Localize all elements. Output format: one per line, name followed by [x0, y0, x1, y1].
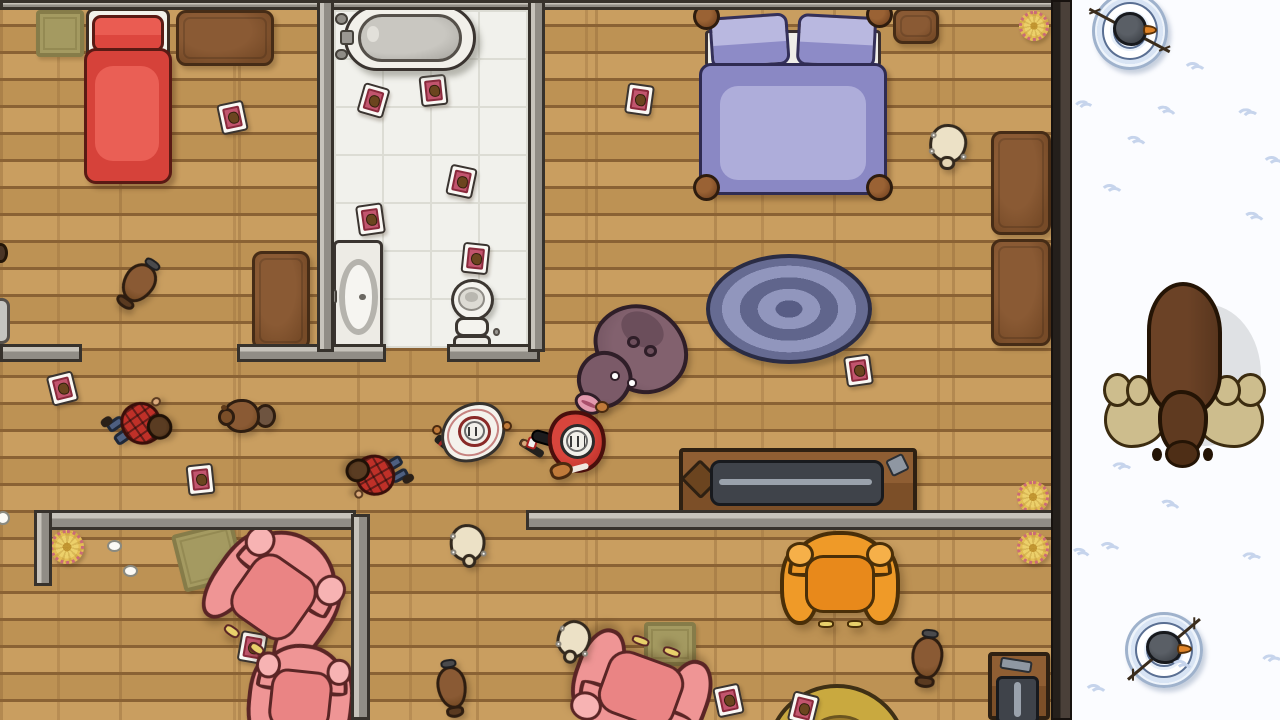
playerred-boot2	[595, 401, 609, 413]
bedpurple-pillow-l	[709, 12, 791, 70]
hippo-ear1	[627, 336, 640, 348]
snow-mark-2	[1153, 104, 1179, 121]
toilet-hole	[465, 292, 477, 302]
rug-round-bottomleft	[50, 530, 84, 564]
bedpurple-post-br	[866, 174, 893, 201]
wall-mid-left-v	[34, 510, 52, 586]
rug-round-right-1	[1017, 481, 1049, 513]
hippo-eye1	[610, 371, 620, 380]
hippo-eye2	[627, 378, 637, 387]
chair-knob-r	[866, 542, 894, 567]
toilet-btn	[493, 328, 500, 336]
game-stage[interactable]	[0, 0, 1280, 720]
rug-brown-top	[176, 10, 274, 66]
bedred-duvet-hl	[95, 66, 158, 161]
snow-mark-15	[1259, 652, 1280, 669]
snow-mark-13	[1169, 659, 1194, 675]
wall-bottomleft-2	[237, 344, 386, 362]
hockey-player-white[interactable]	[432, 399, 512, 465]
rug-brown-left	[252, 251, 310, 350]
bedpurple-pillow-r	[796, 13, 877, 69]
sheep-head	[461, 554, 477, 569]
wall-mid-right-h	[526, 510, 1054, 530]
mat-khaki-topleft	[36, 10, 84, 57]
snow-mark-10	[1157, 498, 1183, 515]
snow-mark-14	[1084, 684, 1108, 698]
egg-2[interactable]	[123, 565, 138, 577]
wall-bathroom-right	[528, 0, 545, 352]
tub-spout	[340, 30, 354, 45]
rug-round-topright	[1019, 11, 1049, 41]
snow-mark-3	[1235, 107, 1260, 123]
playerwhite-tab-l	[432, 425, 442, 435]
chair-seat	[805, 555, 875, 613]
sink-basin	[339, 259, 378, 334]
moose-hoof1	[1152, 448, 1162, 461]
beaver-card-7[interactable]	[624, 82, 655, 116]
bathtub[interactable]	[334, 5, 476, 71]
snow-mark-11	[1098, 542, 1122, 556]
beaver-card-3[interactable]	[418, 74, 448, 108]
snow-mark-9	[1109, 461, 1134, 477]
bedred-pillow	[92, 15, 164, 52]
wall-bottomleft-1	[0, 344, 82, 362]
mat-brown-topright	[893, 8, 939, 44]
bedpurple-post-bl	[693, 174, 720, 201]
beaver-ear	[221, 405, 226, 410]
sheep-foot3	[582, 650, 589, 657]
snow-mark-7	[1241, 211, 1266, 227]
beaver-1[interactable]	[218, 398, 276, 434]
ice-fishing-hole-1[interactable]	[1092, 0, 1168, 70]
armchair-orange[interactable]	[780, 531, 900, 627]
toilet-tank	[455, 317, 488, 337]
beaver-card-9[interactable]	[185, 463, 215, 497]
bed-red[interactable]	[84, 8, 172, 184]
playerwhite-tab-r	[502, 421, 512, 432]
sheep-foot3	[960, 153, 967, 160]
moose-snout	[1165, 440, 1200, 468]
sheep-1[interactable]	[928, 123, 968, 173]
sheep-2[interactable]	[448, 523, 488, 572]
tub-knob2	[335, 49, 348, 61]
sink[interactable]	[333, 240, 383, 354]
playerred-crest	[560, 424, 595, 459]
hippo-ear2	[644, 345, 657, 357]
chair-foot-l	[818, 620, 834, 628]
wall-mid-left-h	[34, 510, 356, 530]
snow-mark-16	[1069, 547, 1092, 562]
sheep-head	[939, 155, 955, 170]
bedpurple-duvet-hl	[720, 86, 866, 179]
chair-foot-r	[847, 620, 863, 628]
tvh-tv-hl	[719, 479, 871, 485]
rug-brown-right-1	[991, 131, 1051, 235]
bed-double-purple[interactable]	[697, 5, 889, 199]
sheep-foot3	[480, 550, 487, 556]
beaver-card-10[interactable]	[843, 353, 874, 387]
tvv-tv-hl	[1014, 682, 1021, 717]
wall-exterior-right	[1051, 0, 1072, 720]
wall-bathroom-left	[317, 0, 334, 352]
gray-object-partial	[0, 298, 10, 344]
beaver-head	[218, 408, 235, 426]
tv-stand-horizontal[interactable]	[679, 448, 917, 518]
rug-round-right-2	[1017, 532, 1049, 564]
snow-mark-12	[1239, 551, 1264, 567]
tub-knob1	[335, 13, 348, 25]
snow-mark-1	[1183, 62, 1207, 76]
rug-brown-right-2	[991, 239, 1051, 346]
sheep-head	[562, 649, 578, 665]
chair-knob-l	[786, 542, 814, 567]
moose-hoof2	[1203, 448, 1213, 461]
snow-mark-6	[1072, 99, 1096, 115]
armchair-pink-2[interactable]	[243, 639, 359, 720]
hockey-player-red[interactable]	[514, 396, 616, 488]
platypus-3[interactable]	[907, 628, 947, 689]
egg-1[interactable]	[107, 540, 122, 552]
platypus-body	[434, 664, 469, 711]
playerwhite-crest	[458, 416, 491, 448]
snow-mark-5	[1100, 184, 1124, 198]
wall-bottomleft-3	[447, 344, 540, 362]
beaver-card-6[interactable]	[460, 242, 490, 276]
snow-mark-4	[1123, 135, 1148, 151]
tv-stand-vertical[interactable]	[988, 652, 1050, 720]
wall-mid-right-v	[351, 514, 370, 720]
toilet[interactable]	[449, 279, 501, 353]
platypus-body	[909, 634, 945, 680]
snow-mark-8	[1262, 156, 1280, 170]
rug-oval-blue	[706, 254, 872, 364]
moose[interactable]	[1104, 282, 1264, 468]
beaver-card-5[interactable]	[355, 202, 386, 236]
